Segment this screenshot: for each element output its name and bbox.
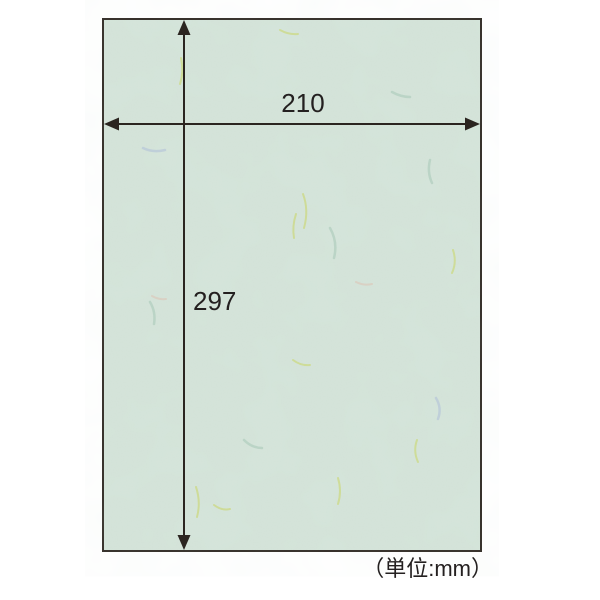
unit-note: （単位:mm） xyxy=(362,556,493,582)
width-dimension-label: 210 xyxy=(243,90,363,116)
product-dimension-diagram: 210 297 （単位:mm） xyxy=(0,0,600,600)
height-dimension-label: 297 xyxy=(193,288,236,314)
